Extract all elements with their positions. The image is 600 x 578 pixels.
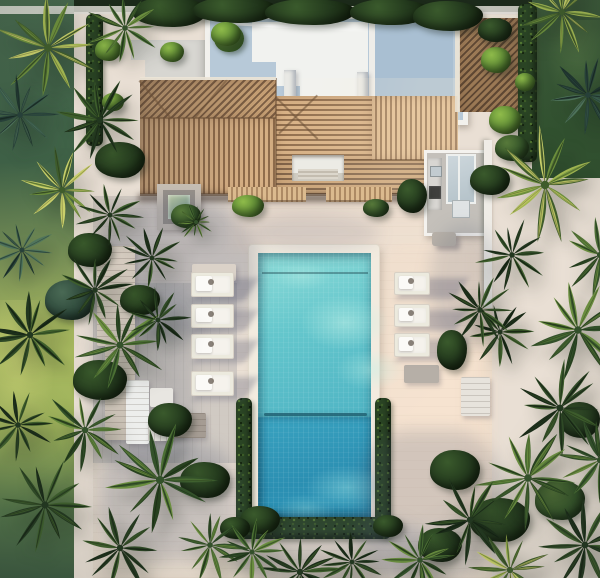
- shrub: [535, 480, 585, 520]
- tree-shadow: [100, 440, 240, 560]
- shrub: [373, 515, 403, 537]
- daybed: [126, 380, 149, 444]
- roof-fascia: [140, 77, 276, 80]
- pool-lap-line: [264, 413, 367, 416]
- shrub: [560, 402, 600, 438]
- lounger-accent: [408, 340, 414, 346]
- shrub: [73, 360, 127, 400]
- shrub: [45, 280, 95, 320]
- pool-step-line: [262, 272, 368, 274]
- shrub: [470, 498, 530, 542]
- shrub: [397, 179, 427, 213]
- lawn-streak: [545, 20, 600, 110]
- shrub: [180, 462, 230, 498]
- palm-tree: [556, 211, 600, 299]
- lounger-accent: [208, 341, 214, 347]
- shrub: [430, 450, 480, 490]
- kitchen-grill: [429, 186, 441, 199]
- shrub: [489, 106, 521, 134]
- side-table-right: [404, 365, 439, 383]
- shrub: [413, 1, 483, 31]
- lounger-accent: [208, 311, 214, 317]
- shrub: [160, 42, 184, 62]
- boxwood-hedge: [86, 14, 103, 146]
- shrub: [95, 39, 121, 61]
- shrub: [515, 73, 535, 91]
- palm-tree: [524, 276, 600, 384]
- kitchen-sink: [430, 166, 442, 177]
- shrub: [120, 285, 160, 315]
- lounger-accent: [208, 378, 214, 384]
- shrub: [265, 0, 355, 25]
- lounger-accent: [408, 278, 414, 284]
- shrub: [495, 135, 529, 161]
- shrub: [481, 47, 511, 73]
- shrub: [232, 195, 264, 217]
- shrub: [148, 403, 192, 437]
- shrub: [418, 528, 462, 562]
- shrub: [220, 517, 250, 539]
- deck-stairs-right: [461, 377, 490, 416]
- tree-shadow: [250, 214, 380, 252]
- pool-tile-grid: [258, 253, 371, 518]
- shrub: [171, 204, 201, 228]
- roof-ridge-line: [140, 117, 276, 119]
- shrub: [363, 199, 389, 217]
- lounger-accent: [408, 310, 414, 316]
- entry-steps: [298, 169, 338, 179]
- lounger-accent: [208, 279, 214, 285]
- shrub: [95, 142, 145, 178]
- shrub: [68, 233, 112, 267]
- grass-highlight: [0, 300, 55, 450]
- kitchen-cabinet-mullion: [458, 154, 460, 200]
- shrub: [437, 330, 467, 370]
- kitchen-fridge: [452, 200, 470, 218]
- shrub: [478, 18, 512, 42]
- shrub: [470, 165, 510, 195]
- shrub: [211, 22, 241, 46]
- shrub: [102, 93, 124, 111]
- villa-aerial-scene: [0, 0, 600, 578]
